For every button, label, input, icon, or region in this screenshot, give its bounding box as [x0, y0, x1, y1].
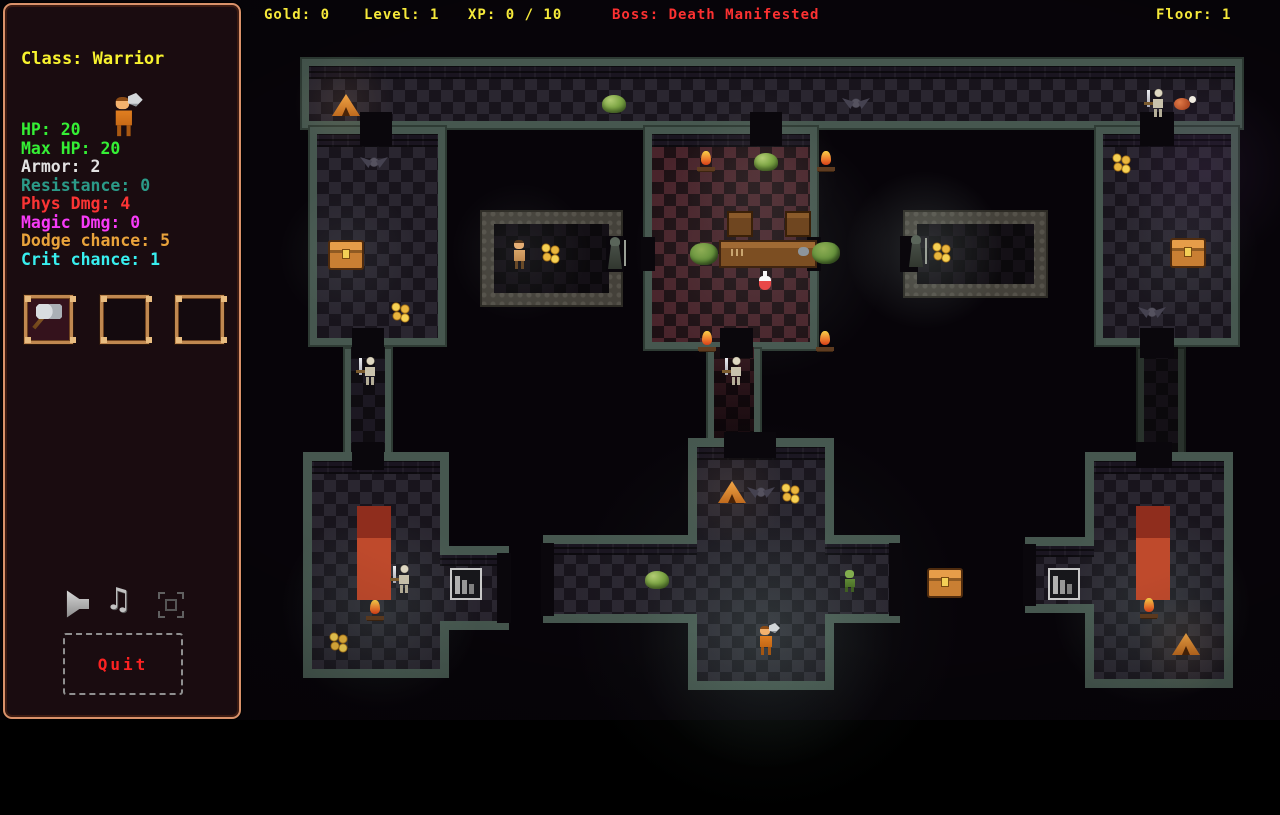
coins-sprite — [931, 242, 953, 264]
carpet-sprite — [1136, 506, 1170, 600]
reaper-sprite — [905, 235, 927, 267]
coins-sprite — [780, 483, 802, 505]
room-floor — [652, 134, 810, 342]
campfire-sprite — [366, 600, 384, 621]
skeleton-sprite — [724, 356, 748, 388]
brick-band — [440, 555, 500, 566]
bush-sprite — [812, 242, 840, 264]
stat-max-hp: Max HP: 20 — [21, 140, 170, 159]
brick-band — [552, 544, 697, 555]
bench-sprite — [785, 211, 811, 237]
inventory-slot-2[interactable] — [100, 295, 149, 344]
skeleton-sprite — [392, 564, 416, 596]
stat-dodge: Dodge chance: 5 — [21, 232, 170, 251]
level-counter: Level: 1 — [364, 7, 439, 23]
doorway — [352, 442, 384, 470]
gold-counter: Gold: 0 — [264, 7, 330, 23]
doorway — [497, 553, 511, 623]
doorway — [352, 328, 384, 358]
skeleton-sprite — [358, 356, 382, 388]
slime-sprite — [645, 571, 669, 589]
coins-sprite — [390, 302, 412, 324]
campfire-sprite — [698, 331, 716, 352]
bat-sprite — [842, 96, 870, 112]
goblin-sprite — [841, 570, 859, 592]
coins-sprite — [1111, 153, 1133, 175]
bush-sprite — [690, 243, 718, 265]
player-avatar — [109, 97, 139, 138]
skeleton-sprite — [1146, 88, 1170, 120]
campfire-sprite — [816, 331, 834, 352]
character-panel: Class: Warrior HP: 20 Max HP: 20 Armor: … — [3, 3, 241, 719]
fullscreen-icon[interactable] — [158, 592, 184, 618]
boss-name: Boss: Death Manifested — [612, 7, 819, 23]
doorway — [750, 112, 782, 146]
doorway — [1136, 442, 1172, 468]
stat-magic-dmg: Magic Dmg: 0 — [21, 214, 170, 233]
campfire-sprite — [1140, 598, 1158, 619]
coins-sprite — [328, 632, 350, 654]
doorway — [889, 543, 902, 616]
chest-sprite — [1170, 238, 1206, 268]
brick-band — [309, 66, 1235, 79]
room-center-red — [643, 125, 819, 351]
shelf-sprite — [450, 568, 482, 600]
doorway — [1140, 328, 1174, 358]
doorway — [724, 432, 776, 458]
doorway — [720, 328, 753, 358]
stats-list: HP: 20 Max HP: 20 Armor: 2 Resistance: 0… — [21, 121, 170, 269]
class-label: Class: Warrior — [21, 49, 164, 69]
campfire-sprite — [697, 151, 715, 172]
shelf-sprite — [1048, 568, 1080, 600]
bat-sprite — [747, 485, 775, 501]
doorway — [641, 237, 655, 271]
quit-button[interactable]: Quit — [63, 633, 183, 695]
stat-armor: Armor: 2 — [21, 158, 170, 177]
campfire-sprite — [817, 151, 835, 172]
stat-crit: Crit chance: 1 — [21, 251, 170, 270]
meat-sprite — [1174, 96, 1196, 112]
slime-sprite — [602, 95, 626, 113]
villager-sprite — [509, 240, 529, 270]
brick-band — [652, 134, 810, 147]
music-icon[interactable]: ♫ — [105, 583, 132, 617]
bat-sprite — [360, 155, 388, 171]
axe-item-icon — [32, 302, 66, 336]
bench-sprite — [727, 211, 753, 237]
potion-sprite — [759, 271, 771, 290]
chest-sprite — [927, 568, 963, 598]
stat-phys-dmg: Phys Dmg: 4 — [21, 195, 170, 214]
coins-sprite — [540, 243, 562, 265]
brick-band — [1034, 546, 1094, 557]
player-sprite — [755, 626, 777, 656]
inventory-slot-3[interactable] — [175, 295, 224, 344]
doorway — [541, 543, 554, 616]
slime-sprite — [754, 153, 778, 171]
sound-icon[interactable] — [65, 590, 89, 618]
doorway — [1023, 544, 1036, 606]
stat-resistance: Resistance: 0 — [21, 177, 170, 196]
stat-hp: HP: 20 — [21, 121, 170, 140]
bat-sprite — [1138, 305, 1166, 321]
carpet-sprite — [357, 506, 391, 600]
reaper-sprite — [604, 237, 626, 269]
brick-band — [825, 544, 891, 555]
chest-sprite — [328, 240, 364, 270]
xp-counter: XP: 0 / 10 — [468, 7, 562, 23]
doorway — [360, 112, 392, 146]
table-sprite — [719, 240, 817, 268]
inventory-slot-1[interactable] — [24, 295, 73, 344]
floor-counter: Floor: 1 — [1156, 7, 1231, 23]
